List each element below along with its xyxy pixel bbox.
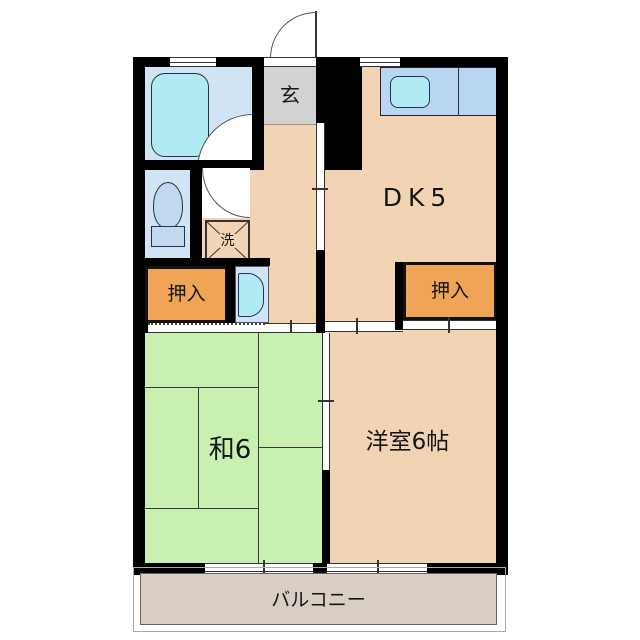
wall-closet-top	[133, 258, 270, 266]
wall-bathroom-right	[252, 57, 264, 170]
wall-top	[216, 57, 264, 67]
wall-closet-right-left	[395, 262, 403, 330]
wall-hall-dk-lower	[316, 250, 325, 333]
toilet-tank-icon	[151, 226, 185, 247]
tatami-line	[145, 387, 258, 388]
balcony-label: バルコニー	[140, 586, 497, 614]
hall-dk-opening-tick	[312, 188, 328, 190]
wall-top	[400, 57, 508, 67]
entrance-door-swing-icon	[270, 12, 316, 58]
wall-toilet-right	[190, 168, 202, 260]
western-room-label: 洋室6帖	[335, 425, 480, 459]
closet-left-front	[148, 323, 265, 333]
window-top-right-icon	[360, 57, 400, 67]
wall-top	[316, 57, 360, 67]
washroom-door-cell	[202, 168, 250, 218]
dk-western-sliding-door-tick	[356, 318, 358, 334]
wall-closet-basin-divider	[226, 262, 235, 323]
hall-sliding-door	[265, 323, 322, 333]
wall-right	[496, 57, 508, 575]
washroom-door-swing-icon	[202, 168, 250, 218]
laundry-label: 洗	[207, 222, 248, 260]
kitchen-counter-divider	[458, 67, 459, 116]
toilet-icon	[153, 182, 183, 229]
wall-washitsu-western-lower	[322, 470, 330, 563]
floor-plan: 洗 玄 DK5 押入 押入 和6 洋	[0, 0, 640, 640]
entrance-opening	[264, 57, 316, 67]
washitsu-western-sliding-door-tick	[318, 400, 334, 402]
genkan-label: 玄	[264, 75, 316, 115]
washbasin-icon	[238, 273, 264, 317]
laundry-unit: 洗	[205, 220, 250, 262]
window-top-left-icon	[170, 57, 216, 67]
wall-left	[133, 57, 145, 575]
bathtub-icon	[151, 73, 209, 157]
japanese-room-label: 和6	[180, 432, 280, 468]
closet-left-label: 押入	[167, 285, 205, 304]
closet-right: 押入	[403, 262, 497, 320]
closet-right-label: 押入	[431, 282, 469, 301]
kitchen-sink-icon	[390, 76, 430, 108]
closet-right-front-tick	[448, 317, 450, 333]
closet-right-front	[403, 320, 497, 330]
dk-western-sliding-door	[325, 321, 403, 332]
dk-label: DK5	[360, 180, 475, 214]
hall-dk-opening	[316, 123, 325, 250]
closet-left: 押入	[145, 266, 228, 323]
tatami-line	[145, 508, 258, 509]
